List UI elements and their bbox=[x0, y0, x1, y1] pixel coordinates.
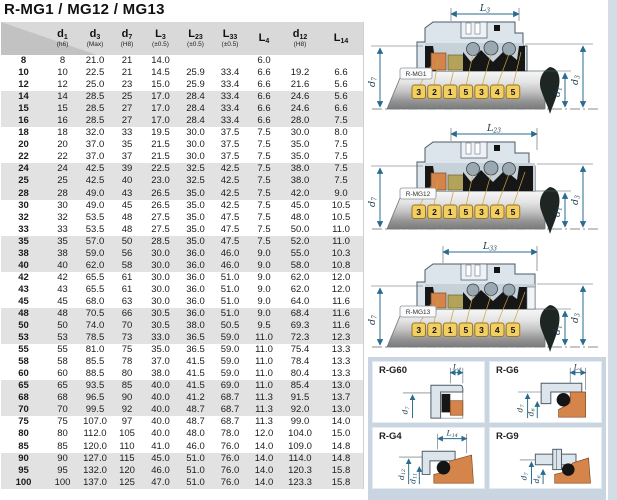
table-cell: 75.4 bbox=[281, 344, 319, 356]
column-header: d3(Max) bbox=[79, 22, 111, 55]
table-cell: 21 bbox=[111, 55, 143, 67]
table-cell: 45 bbox=[111, 200, 143, 212]
table-cell: 70 bbox=[111, 320, 143, 332]
svg-text:d7: d7 bbox=[516, 404, 526, 413]
table-cell: 14.5 bbox=[143, 67, 178, 79]
table-cell: 28.0 bbox=[281, 115, 319, 127]
table-cell: 127.0 bbox=[79, 453, 111, 465]
table-cell: 80 bbox=[46, 428, 79, 440]
panel-r-g6: R-G6 L4 d7 d6 bbox=[489, 361, 602, 423]
row-size-label: 43 bbox=[1, 284, 46, 296]
seat-detail-panels: R-G60 L4 d7 R-G6 bbox=[368, 357, 606, 500]
table-cell: 68.7 bbox=[213, 416, 247, 428]
table-cell: 43 bbox=[46, 284, 79, 296]
table-cell: 95 bbox=[46, 465, 79, 477]
table-row: 686896.59040.041.268.711.391.513.7 bbox=[1, 392, 363, 404]
table-cell: 33.4 bbox=[213, 91, 247, 103]
table-cell: 56 bbox=[111, 248, 143, 260]
svg-text:d7: d7 bbox=[367, 77, 379, 87]
part-number: 3 bbox=[416, 325, 421, 335]
table-cell: 9.0 bbox=[247, 272, 281, 284]
table-cell: 7.5 bbox=[247, 212, 281, 224]
diagram-label: R-MG13 bbox=[406, 309, 431, 316]
table-cell: 48.0 bbox=[178, 428, 213, 440]
table-cell: 42.5 bbox=[213, 175, 247, 187]
table-row: 505074.07030.538.050.59.569.311.6 bbox=[1, 320, 363, 332]
part-number: 4 bbox=[495, 325, 500, 335]
table-cell: 35.0 bbox=[281, 139, 319, 151]
table-row: 434365.56130.036.051.09.062.012.0 bbox=[1, 284, 363, 296]
table-cell: 25 bbox=[111, 91, 143, 103]
column-header: L3(±0.5) bbox=[143, 22, 178, 55]
table-cell: 30 bbox=[46, 200, 79, 212]
table-cell: 24.6 bbox=[281, 103, 319, 115]
table-cell: 28.5 bbox=[79, 103, 111, 115]
table-cell: 61 bbox=[111, 284, 143, 296]
table-cell: 61 bbox=[111, 272, 143, 284]
part-number: 3 bbox=[479, 325, 484, 335]
table-cell: 78 bbox=[111, 356, 143, 368]
row-size-label: 18 bbox=[1, 127, 46, 139]
table-cell: 70.5 bbox=[79, 308, 111, 320]
svg-text:L4: L4 bbox=[452, 363, 461, 373]
column-header: L4 bbox=[247, 22, 281, 55]
table-cell: 92 bbox=[111, 404, 143, 416]
table-cell: 68.0 bbox=[79, 296, 111, 308]
table-body: 8821.02114.06.0101022.52114.525.933.46.6… bbox=[1, 55, 363, 489]
table-cell: 51.0 bbox=[178, 453, 213, 465]
row-size-label: 58 bbox=[1, 356, 46, 368]
table-cell: 7.5 bbox=[319, 115, 363, 127]
table-row: 8585120.011041.046.076.014.0109.014.8 bbox=[1, 441, 363, 453]
table-cell: 41.2 bbox=[178, 392, 213, 404]
column-header: L33(±0.5) bbox=[213, 22, 247, 55]
table-cell: 11.3 bbox=[247, 416, 281, 428]
table-cell: 36.5 bbox=[178, 332, 213, 344]
table-row: 424265.56130.036.051.09.062.012.0 bbox=[1, 272, 363, 284]
table-cell: 23 bbox=[111, 79, 143, 91]
table-row: 484870.56630.536.051.09.068.411.6 bbox=[1, 308, 363, 320]
table-cell: 11.3 bbox=[247, 404, 281, 416]
table-cell: 7.5 bbox=[247, 139, 281, 151]
table-cell: 62.0 bbox=[281, 284, 319, 296]
table-cell: 10.3 bbox=[319, 248, 363, 260]
table-cell: 6.6 bbox=[319, 103, 363, 115]
svg-text:d7: d7 bbox=[367, 315, 379, 325]
table-row: 707099.59240.048.768.711.392.013.0 bbox=[1, 404, 363, 416]
table-cell: 47.5 bbox=[213, 224, 247, 236]
table-cell: 14.0 bbox=[247, 441, 281, 453]
table-cell: 50.5 bbox=[213, 320, 247, 332]
table-cell: 15.8 bbox=[319, 465, 363, 477]
part-number: 3 bbox=[479, 207, 484, 217]
row-size-label: 32 bbox=[1, 212, 46, 224]
table-cell: 36.0 bbox=[178, 260, 213, 272]
spring-coil bbox=[503, 284, 515, 296]
table-cell: 47.5 bbox=[213, 212, 247, 224]
table-cell: 7.5 bbox=[247, 200, 281, 212]
table-cell: 45 bbox=[46, 296, 79, 308]
table-cell bbox=[178, 55, 213, 67]
table-cell: 62.0 bbox=[281, 272, 319, 284]
table-cell: 25.9 bbox=[178, 67, 213, 79]
table-cell: 40 bbox=[111, 175, 143, 187]
table-cell: 33.4 bbox=[213, 79, 247, 91]
table-cell: 38 bbox=[46, 248, 79, 260]
table-cell: 115 bbox=[111, 453, 143, 465]
table-cell: 11.0 bbox=[247, 356, 281, 368]
table-cell: 97 bbox=[111, 416, 143, 428]
table-cell: 11.0 bbox=[319, 236, 363, 248]
table-row: 535378.57333.036.559.011.072.312.3 bbox=[1, 332, 363, 344]
table-cell: 112.0 bbox=[79, 428, 111, 440]
table-cell: 42.0 bbox=[281, 188, 319, 200]
row-size-label: 95 bbox=[1, 465, 46, 477]
table-cell: 46.0 bbox=[213, 248, 247, 260]
table-cell: 9.0 bbox=[247, 248, 281, 260]
table-row: 161628.52717.028.433.46.628.07.5 bbox=[1, 115, 363, 127]
table-cell: 28.4 bbox=[178, 91, 213, 103]
table-cell: 57.0 bbox=[79, 236, 111, 248]
table-row: 606088.58038.041.559.011.080.413.3 bbox=[1, 368, 363, 380]
table-cell: 15.0 bbox=[319, 428, 363, 440]
table-cell: 14.0 bbox=[319, 416, 363, 428]
table-cell: 53.5 bbox=[79, 224, 111, 236]
row-size-label: 90 bbox=[1, 453, 46, 465]
diagram-r-mg13: R-MG13 3215345 L33 d7 d1 d3 bbox=[367, 240, 607, 358]
part-number: 1 bbox=[448, 87, 453, 97]
table-row: 333353.54827.535.047.57.550.011.0 bbox=[1, 224, 363, 236]
table-cell: 42.5 bbox=[213, 200, 247, 212]
table-cell: 32 bbox=[46, 212, 79, 224]
row-size-label: 8 bbox=[1, 55, 46, 67]
table-cell: 41.0 bbox=[143, 441, 178, 453]
table-cell: 12 bbox=[46, 79, 79, 91]
table-cell: 51.0 bbox=[178, 465, 213, 477]
table-cell: 13.0 bbox=[319, 404, 363, 416]
table-cell: 47.5 bbox=[213, 236, 247, 248]
table-cell bbox=[213, 55, 247, 67]
table-cell: 13.7 bbox=[319, 392, 363, 404]
table-cell: 11.6 bbox=[319, 308, 363, 320]
part-number: 5 bbox=[463, 207, 468, 217]
table-cell: 85.4 bbox=[281, 380, 319, 392]
table-cell: 15.8 bbox=[319, 477, 363, 489]
table-row: 141428.52517.028.433.46.624.65.6 bbox=[1, 91, 363, 103]
table-cell: 75 bbox=[111, 344, 143, 356]
table-cell: 47.0 bbox=[143, 477, 178, 489]
table-cell: 35.0 bbox=[178, 188, 213, 200]
table-cell: 22 bbox=[46, 151, 79, 163]
table-cell: 33.4 bbox=[213, 115, 247, 127]
table-cell: 9.0 bbox=[247, 260, 281, 272]
table-row: 9595132.012046.051.076.014.0120.315.8 bbox=[1, 465, 363, 477]
table-cell: 41.5 bbox=[178, 368, 213, 380]
table-cell: 12.0 bbox=[319, 284, 363, 296]
table-cell: 12.0 bbox=[319, 272, 363, 284]
table-cell: 21 bbox=[111, 67, 143, 79]
table-cell: 63 bbox=[111, 296, 143, 308]
table-cell: 35.0 bbox=[143, 344, 178, 356]
table-cell: 28.4 bbox=[178, 115, 213, 127]
table-row: 252542.54023.032.542.57.538.07.5 bbox=[1, 175, 363, 187]
table-cell: 60 bbox=[46, 368, 79, 380]
face-ring bbox=[448, 295, 465, 308]
table-cell: 78.4 bbox=[281, 356, 319, 368]
table-cell: 59.0 bbox=[213, 368, 247, 380]
table-cell bbox=[281, 55, 319, 67]
panel-label: R-G9 bbox=[496, 431, 519, 442]
table-cell: 42.5 bbox=[213, 163, 247, 175]
table-cell: 12.3 bbox=[319, 332, 363, 344]
table-cell: 17.0 bbox=[143, 91, 178, 103]
table-cell: 9.0 bbox=[247, 296, 281, 308]
table-cell: 37.5 bbox=[213, 151, 247, 163]
table-cell: 19.2 bbox=[281, 67, 319, 79]
table-cell: 65.5 bbox=[79, 284, 111, 296]
table-row: 181832.03319.530.037.57.530.08.0 bbox=[1, 127, 363, 139]
table-row: 454568.06330.036.051.09.064.011.6 bbox=[1, 296, 363, 308]
diagram-label: R-MG1 bbox=[406, 71, 427, 78]
table-cell: 120.0 bbox=[79, 441, 111, 453]
spring-coil bbox=[467, 43, 480, 56]
table-cell: 15.0 bbox=[143, 79, 178, 91]
svg-text:L14: L14 bbox=[446, 429, 458, 439]
table-cell: 9.0 bbox=[247, 308, 281, 320]
table-cell: 123.3 bbox=[281, 477, 319, 489]
table-cell: 55 bbox=[46, 344, 79, 356]
part-number-tags: 3215345 bbox=[412, 85, 520, 99]
row-size-label: 20 bbox=[1, 139, 46, 151]
table-cell: 72.3 bbox=[281, 332, 319, 344]
table-cell: 22.5 bbox=[143, 163, 178, 175]
table-cell: 28.5 bbox=[79, 115, 111, 127]
table-cell: 16 bbox=[46, 115, 79, 127]
row-size-label: 45 bbox=[1, 296, 46, 308]
table-cell: 37 bbox=[111, 151, 143, 163]
seal-head bbox=[417, 264, 535, 309]
table-cell: 6.6 bbox=[247, 91, 281, 103]
table-cell: 73 bbox=[111, 332, 143, 344]
table-cell: 48 bbox=[46, 308, 79, 320]
table-cell: 68 bbox=[46, 392, 79, 404]
column-header: d7(H8) bbox=[111, 22, 143, 55]
table-cell: 13.0 bbox=[319, 380, 363, 392]
row-size-label: 60 bbox=[1, 368, 46, 380]
table-cell: 32.5 bbox=[178, 175, 213, 187]
table-cell: 36.0 bbox=[178, 296, 213, 308]
table-cell: 51.0 bbox=[213, 284, 247, 296]
table-cell: 6.6 bbox=[247, 115, 281, 127]
spring-coil bbox=[484, 161, 498, 175]
table-cell: 59.0 bbox=[213, 344, 247, 356]
table-cell: 92.0 bbox=[281, 404, 319, 416]
seat-ring bbox=[431, 53, 446, 70]
table-cell: 22.5 bbox=[79, 67, 111, 79]
panel-label: R-G4 bbox=[379, 431, 402, 442]
table-cell: 33 bbox=[46, 224, 79, 236]
set-screw bbox=[494, 25, 500, 31]
part-number: 5 bbox=[511, 325, 516, 335]
table-cell: 59.0 bbox=[213, 356, 247, 368]
table-cell: 46.0 bbox=[213, 260, 247, 272]
table-cell: 59.0 bbox=[213, 332, 247, 344]
table-cell: 27 bbox=[111, 115, 143, 127]
part-number: 3 bbox=[479, 87, 484, 97]
table-cell: 55.0 bbox=[281, 248, 319, 260]
row-size-label: 75 bbox=[1, 416, 46, 428]
table-cell: 96.5 bbox=[79, 392, 111, 404]
table-cell: 33.4 bbox=[213, 103, 247, 115]
row-size-label: 100 bbox=[1, 477, 46, 489]
table-row: 323253.54827.535.047.57.548.010.5 bbox=[1, 212, 363, 224]
svg-text:d3: d3 bbox=[570, 75, 582, 85]
table-cell: 35.0 bbox=[178, 212, 213, 224]
table-cell: 40.0 bbox=[143, 392, 178, 404]
table-cell: 80.4 bbox=[281, 368, 319, 380]
table-cell: 13.3 bbox=[319, 368, 363, 380]
table-cell: 30.0 bbox=[281, 127, 319, 139]
table-cell: 46.0 bbox=[178, 441, 213, 453]
svg-text:d7: d7 bbox=[401, 405, 411, 414]
table-cell: 68.4 bbox=[281, 308, 319, 320]
table-cell: 27 bbox=[111, 103, 143, 115]
svg-text:L4: L4 bbox=[573, 363, 582, 373]
table-cell: 42.5 bbox=[79, 163, 111, 175]
row-size-label: 14 bbox=[1, 91, 46, 103]
svg-text:d6: d6 bbox=[532, 475, 542, 483]
table-cell: 41.5 bbox=[178, 356, 213, 368]
table-cell: 37.0 bbox=[143, 356, 178, 368]
row-size-label: 65 bbox=[1, 380, 46, 392]
table-cell: 58 bbox=[111, 260, 143, 272]
table-cell: 21.5 bbox=[143, 139, 178, 151]
table-cell: 48 bbox=[111, 212, 143, 224]
oring bbox=[557, 393, 571, 407]
table-cell: 36.0 bbox=[178, 308, 213, 320]
row-size-label: 53 bbox=[1, 332, 46, 344]
table-cell: 65.5 bbox=[79, 272, 111, 284]
table-cell: 45.0 bbox=[281, 200, 319, 212]
table-cell: 114.0 bbox=[281, 453, 319, 465]
table-row: 202037.03521.530.037.57.535.07.5 bbox=[1, 139, 363, 151]
table-row: 383859.05630.036.046.09.055.010.3 bbox=[1, 248, 363, 260]
table-cell: 33 bbox=[111, 127, 143, 139]
table-cell: 10.5 bbox=[319, 200, 363, 212]
table-cell: 35.0 bbox=[178, 236, 213, 248]
table-cell: 42.5 bbox=[213, 188, 247, 200]
part-number: 4 bbox=[495, 87, 500, 97]
table-cell: 91.5 bbox=[281, 392, 319, 404]
table-cell: 30.0 bbox=[143, 284, 178, 296]
table-cell: 21.6 bbox=[281, 79, 319, 91]
part-number-tags: 3215345 bbox=[412, 205, 520, 219]
row-size-label: 85 bbox=[1, 441, 46, 453]
row-size-label: 70 bbox=[1, 404, 46, 416]
table-cell: 32.5 bbox=[178, 163, 213, 175]
panel-label: R-G6 bbox=[496, 365, 519, 376]
table-cell: 28.4 bbox=[178, 103, 213, 115]
table-row: 585885.57837.041.559.011.078.413.3 bbox=[1, 356, 363, 368]
table-cell: 37.5 bbox=[213, 139, 247, 151]
table-cell: 35.0 bbox=[178, 200, 213, 212]
table-cell: 40 bbox=[46, 260, 79, 272]
table-cell: 33.4 bbox=[213, 67, 247, 79]
column-header: L23(±0.5) bbox=[178, 22, 213, 55]
table-cell: 120 bbox=[111, 465, 143, 477]
table-cell: 14.0 bbox=[143, 55, 178, 67]
table-cell: 30.0 bbox=[143, 260, 178, 272]
table-cell: 14.0 bbox=[247, 465, 281, 477]
table-cell: 9.5 bbox=[247, 320, 281, 332]
table-cell: 104.0 bbox=[281, 428, 319, 440]
table-cell: 48.7 bbox=[178, 404, 213, 416]
table-row: 121225.02315.025.933.46.621.65.6 bbox=[1, 79, 363, 91]
table-cell: 76.0 bbox=[213, 465, 247, 477]
column-header: d12(H8) bbox=[281, 22, 319, 55]
table-cell: 62.0 bbox=[79, 260, 111, 272]
row-size-label: 38 bbox=[1, 248, 46, 260]
table-cell: 35.0 bbox=[178, 224, 213, 236]
panel-label: R-G60 bbox=[379, 365, 407, 376]
table-cell: 30.0 bbox=[178, 127, 213, 139]
table-cell: 65 bbox=[46, 380, 79, 392]
table-cell: 93.5 bbox=[79, 380, 111, 392]
table-cell: 50.0 bbox=[281, 224, 319, 236]
table-cell: 78.5 bbox=[79, 332, 111, 344]
table-cell: 8.0 bbox=[319, 127, 363, 139]
table-cell: 68.7 bbox=[213, 392, 247, 404]
row-size-label: 80 bbox=[1, 428, 46, 440]
table-cell: 11.6 bbox=[319, 296, 363, 308]
table-cell: 41.5 bbox=[178, 380, 213, 392]
table-cell: 53 bbox=[46, 332, 79, 344]
row-size-label: 25 bbox=[1, 175, 46, 187]
part-number: 2 bbox=[432, 325, 437, 335]
table-cell: 69.0 bbox=[213, 380, 247, 392]
table-cell: 18 bbox=[46, 127, 79, 139]
table-cell: 85 bbox=[111, 380, 143, 392]
table-cell: 14 bbox=[46, 91, 79, 103]
table-cell: 7.5 bbox=[319, 175, 363, 187]
face-ring bbox=[448, 55, 465, 70]
seat bbox=[450, 401, 463, 416]
spring-coil bbox=[467, 163, 480, 176]
table-cell: 7.5 bbox=[319, 151, 363, 163]
table-cell: 14.8 bbox=[319, 441, 363, 453]
table-cell: 81.0 bbox=[79, 344, 111, 356]
row-size-label: 55 bbox=[1, 344, 46, 356]
part-number-tags: 3215345 bbox=[412, 323, 520, 337]
table-cell: 51.0 bbox=[178, 477, 213, 489]
table-cell: 11.0 bbox=[247, 344, 281, 356]
row-size-label: 40 bbox=[1, 260, 46, 272]
table-cell: 43 bbox=[111, 188, 143, 200]
table-cell: 137.0 bbox=[79, 477, 111, 489]
column-header: d1(h6) bbox=[46, 22, 79, 55]
row-size-label: 22 bbox=[1, 151, 46, 163]
table-cell: 36.0 bbox=[178, 248, 213, 260]
part-number: 3 bbox=[416, 207, 421, 217]
row-size-label: 33 bbox=[1, 224, 46, 236]
seal-head bbox=[417, 22, 527, 71]
table-cell: 30.5 bbox=[143, 320, 178, 332]
part-number: 1 bbox=[448, 207, 453, 217]
table-cell: 30.0 bbox=[143, 272, 178, 284]
table-cell: 5.6 bbox=[319, 91, 363, 103]
table-cell: 33.0 bbox=[143, 332, 178, 344]
table-cell: 90 bbox=[46, 453, 79, 465]
